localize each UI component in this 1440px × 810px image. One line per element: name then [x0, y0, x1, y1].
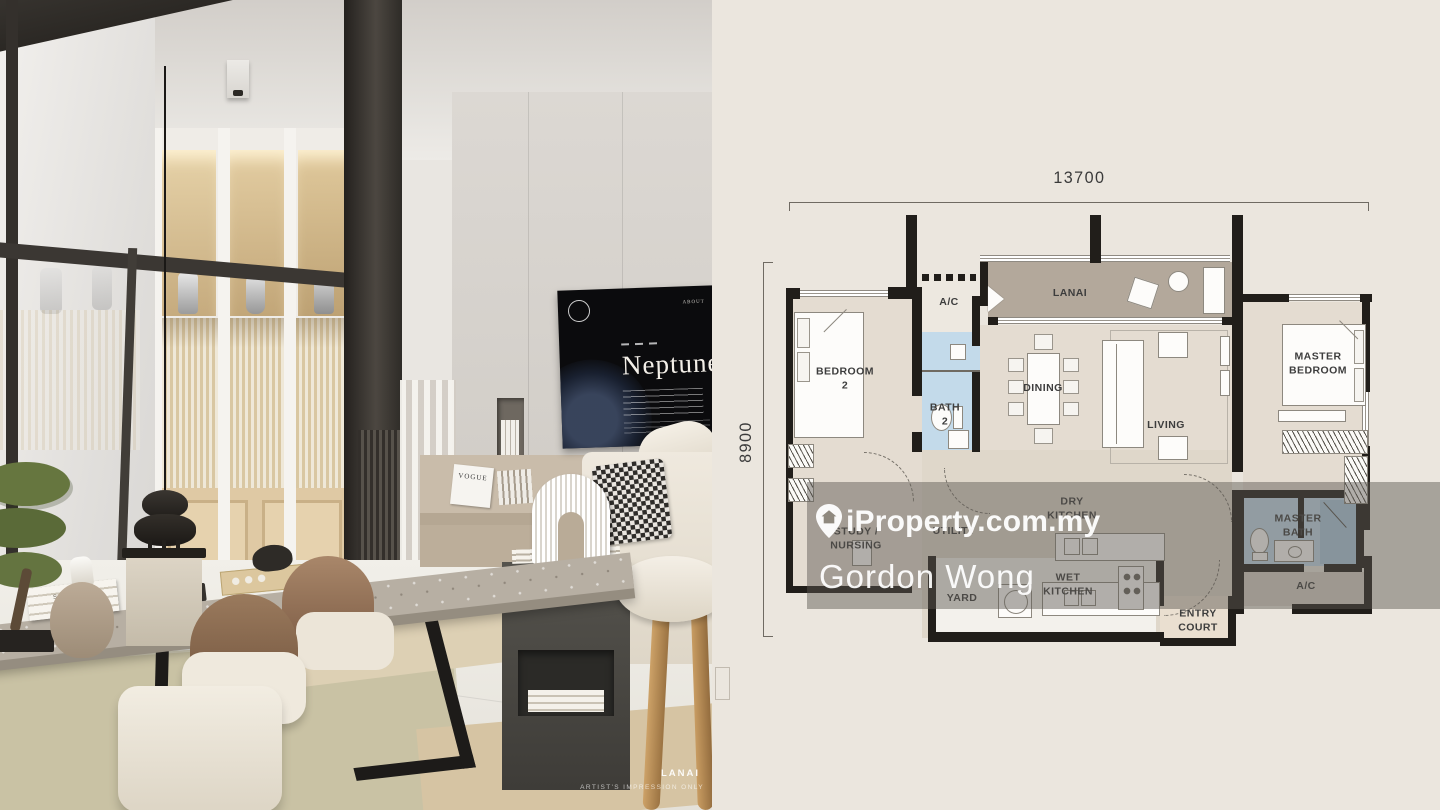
tv-console	[1220, 370, 1230, 396]
master-window-top	[1287, 294, 1365, 301]
tv-badge-icon	[568, 300, 591, 323]
wall-segment	[1222, 317, 1232, 325]
wall-segment	[928, 632, 1164, 642]
kettle-cord	[164, 66, 166, 494]
bookshelf-icon	[788, 444, 814, 468]
interior-photo: VOGUE ABOUT Neptune	[0, 0, 712, 810]
dining-chair	[1008, 380, 1024, 394]
kettle-pedestal	[126, 556, 202, 646]
watermark-agent: Gordon Wong	[819, 558, 1035, 596]
wall-segment	[980, 262, 988, 306]
vanity-icon	[948, 430, 969, 449]
wall-segment	[1243, 294, 1289, 302]
dining-chair	[1063, 358, 1079, 372]
sink-icon	[950, 344, 966, 360]
lanai-window-top	[980, 255, 1230, 262]
tv-title: Neptune	[621, 347, 712, 381]
dimension-bracket-top	[789, 202, 1369, 203]
wall-segment	[906, 215, 917, 291]
dining-chair	[1063, 380, 1079, 394]
photo-caption-title: LANAI	[661, 768, 700, 779]
adjacent-unit-outline	[715, 667, 730, 700]
bath-divider	[922, 370, 980, 372]
lanai-door-leaf	[988, 286, 1004, 312]
armchair-icon	[1158, 436, 1188, 460]
room-label-bath2: BATH2	[930, 401, 960, 428]
bracket-tick	[789, 202, 790, 211]
dining-chair	[1008, 358, 1024, 372]
dining-chair	[1034, 428, 1053, 444]
wall-segment	[912, 432, 922, 452]
tv-body-lines	[623, 388, 704, 417]
dimension-bracket-left	[763, 262, 764, 637]
room-label-lanai: LANAI	[1053, 287, 1087, 301]
room-label-bedroom2: BEDROOM2	[816, 365, 874, 392]
slat-screen-shadow	[152, 318, 360, 348]
wall-segment	[1232, 215, 1243, 302]
chair-seat	[296, 612, 394, 670]
bracket-tick	[763, 636, 773, 637]
shelf-books	[497, 469, 533, 505]
wall-segment	[988, 317, 998, 325]
pillow-icon	[797, 352, 810, 382]
ceramic-jar	[178, 272, 198, 314]
lanai-bench	[1203, 267, 1225, 314]
dimension-width: 13700	[1053, 168, 1105, 188]
round-pouf	[50, 582, 114, 658]
wall-segment	[786, 288, 793, 593]
room-label-living: LIVING	[1147, 419, 1185, 433]
room-label-master-bedroom: MASTERBEDROOM	[1289, 350, 1347, 377]
bracket-tick	[763, 262, 773, 263]
wall-segment	[1232, 296, 1243, 472]
dining-chair	[1063, 402, 1079, 416]
pillow-icon	[1354, 368, 1364, 402]
lanai-window-bottom	[988, 317, 1232, 324]
tv-menu-label: ABOUT	[682, 300, 704, 306]
ottoman	[118, 686, 282, 810]
sofa-cushion-line	[1116, 344, 1117, 444]
kettle-legs	[148, 540, 182, 550]
pillow-icon	[797, 318, 810, 348]
dining-chair	[1008, 402, 1024, 416]
dining-chair	[1034, 334, 1053, 350]
room-label-entry-court: ENTRYCOURT	[1178, 607, 1218, 634]
bedroom-window	[798, 290, 890, 297]
wall-segment	[972, 370, 980, 452]
location-pin-icon	[816, 504, 842, 538]
listing-image: VOGUE ABOUT Neptune	[0, 0, 1440, 810]
downlight-lamp	[233, 90, 243, 96]
dimension-height: 8900	[736, 421, 756, 463]
wall-segment	[1360, 294, 1372, 302]
bed-bench	[1278, 410, 1346, 422]
floor-plan: 13700 8900	[712, 0, 1440, 810]
wall-segment	[1160, 638, 1236, 646]
wall-segment	[972, 296, 980, 346]
armchair-icon	[1158, 332, 1188, 358]
room-label-dining: DINING	[1023, 382, 1062, 396]
watermark-brand: iProperty.com.my	[846, 505, 1100, 539]
tv-breadcrumb-dashes	[621, 342, 657, 345]
bonsai-pot	[0, 630, 54, 652]
wall-segment	[912, 296, 922, 396]
wall-segment	[1090, 215, 1101, 263]
glass-reflection-jar	[40, 268, 62, 314]
bracket-tick	[1368, 202, 1369, 211]
magazine: VOGUE	[450, 464, 494, 508]
magazine-title: VOGUE	[458, 472, 488, 483]
tv-console	[1220, 336, 1230, 366]
photo-caption-subtitle: ARTIST'S IMPRESSION ONLY	[580, 784, 704, 791]
ac-dashed-wall	[922, 274, 976, 281]
lanai-floor	[988, 262, 1232, 318]
room-label-ac-top: A/C	[939, 296, 958, 310]
sofa-icon	[1102, 340, 1144, 448]
glass-reflection-jar	[92, 266, 112, 310]
glass-reflection-slats	[0, 310, 140, 450]
wardrobe-icon	[1282, 430, 1368, 454]
lanai-stool	[1168, 271, 1189, 292]
